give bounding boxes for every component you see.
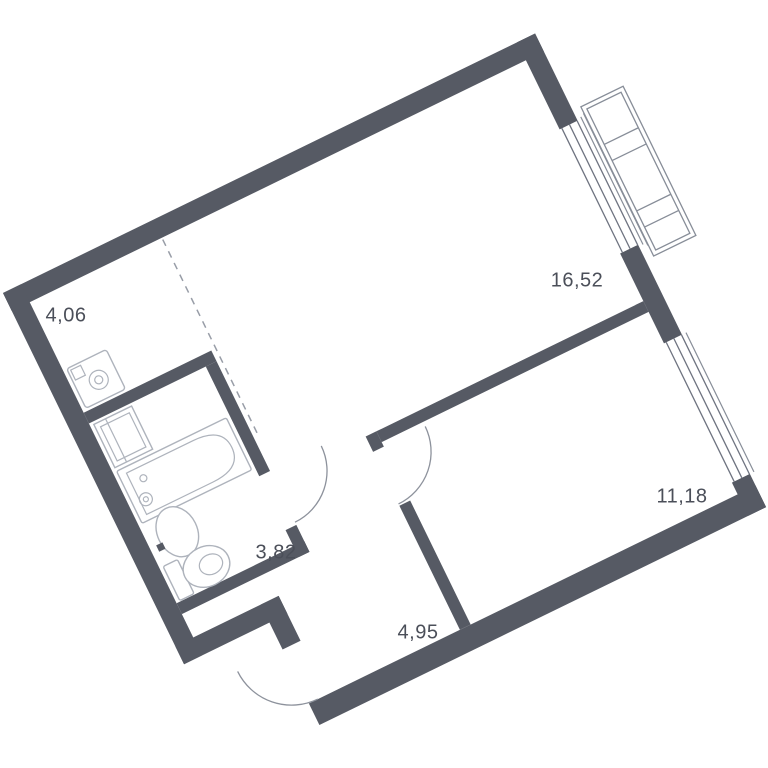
floor-plan-drawing xyxy=(0,0,768,768)
bathroom-door-arc xyxy=(270,446,346,522)
room-label-bedroom: 11,18 xyxy=(656,486,707,509)
wall-right-mid-block xyxy=(620,245,682,344)
rotated-plan-group xyxy=(3,9,768,767)
room-label-bathroom: 3,82 xyxy=(256,542,297,565)
entrance-door-arc xyxy=(238,645,318,725)
zone-divider-dashed-line xyxy=(163,240,258,434)
bedroom-window xyxy=(666,333,754,482)
room-label-living-room: 16,52 xyxy=(551,270,604,293)
balcony xyxy=(581,86,696,256)
wall-right-top-block xyxy=(517,33,577,129)
wall-bottom xyxy=(309,486,766,725)
room-label-hallway: 4,06 xyxy=(46,305,87,328)
living-room-window xyxy=(560,113,648,257)
room-label-entry-corridor: 4,95 xyxy=(398,622,439,645)
floor-plan-canvas: 4,06 16,52 11,18 3,82 4,95 xyxy=(0,0,768,768)
wall-top xyxy=(3,33,544,310)
wall-living-bedroom-divider xyxy=(366,301,738,630)
wall-bedroom-left xyxy=(399,501,470,630)
